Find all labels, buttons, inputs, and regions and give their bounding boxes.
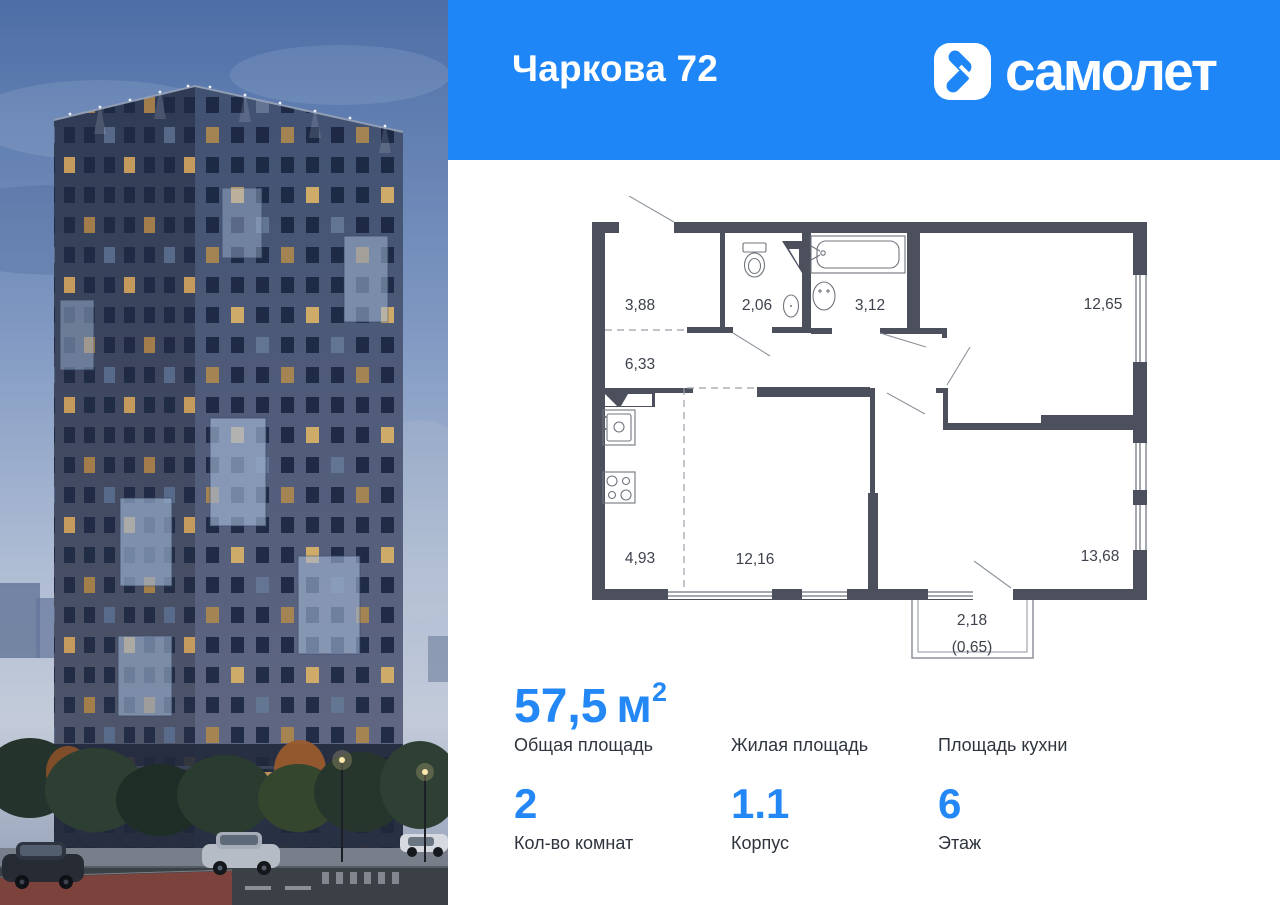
washbasin-icon: [813, 282, 835, 310]
kitchen-area-value: [938, 684, 1158, 730]
room-area-corridor: 6,33: [625, 356, 655, 373]
floor-value: 6: [938, 784, 1158, 824]
apartment-card: { "header": { "project_title": "Чаркова …: [0, 0, 1280, 905]
wc-sink-icon: [784, 295, 799, 317]
floor-plan: 3,88 2,06 3,12 12,65 6,33 4,93 12,16 13,…: [592, 196, 1152, 678]
living-area-value: [731, 684, 938, 730]
floor-label: Этаж: [938, 832, 1158, 854]
room-area-bathroom: 3,12: [855, 297, 885, 314]
stat-col-2: Жилая площадь 1.1 Корпус: [731, 684, 938, 854]
total-area-label: Общая площадь: [514, 734, 731, 756]
room-area-kitchen: 4,93: [625, 550, 655, 567]
bathtub-icon: [811, 236, 905, 273]
stat-col-3: Площадь кухни 6 Этаж: [938, 684, 1158, 854]
room-area-balcony-reduced: (0,65): [952, 639, 993, 656]
room-area-wc: 2,06: [742, 297, 772, 314]
building-value: 1.1: [731, 784, 938, 824]
room-area-bedroom: 12,65: [1084, 296, 1123, 313]
stove-icon: [603, 472, 635, 503]
plan-walls: [592, 222, 1147, 600]
floor-plan-container: 3,88 2,06 3,12 12,65 6,33 4,93 12,16 13,…: [592, 196, 1152, 678]
tower: [54, 85, 403, 858]
room-area-hallway: 3,88: [625, 297, 655, 314]
building-photo-pane: [0, 0, 448, 905]
brand-name: самолет: [1005, 43, 1216, 100]
header-bar: Чаркова 72 самолет: [448, 0, 1280, 160]
details-panel: Чаркова 72 самолет: [448, 0, 1280, 905]
kitchen-area-label: Площадь кухни: [938, 734, 1158, 756]
brand-logo: самолет: [934, 43, 1216, 100]
building-photo: [0, 0, 448, 905]
samolet-logo-icon: [934, 43, 991, 100]
toilet-icon: [743, 243, 766, 277]
building-label: Корпус: [731, 832, 938, 854]
total-area-value: 57,5м2: [514, 684, 731, 730]
rooms-count-value: 2: [514, 784, 731, 824]
vent-shaft-icon: [782, 241, 802, 273]
apartment-stats: 57,5м2 Общая площадь 2 Кол-во комнат Жил…: [514, 684, 1158, 854]
kitchen-sink-icon: [603, 410, 635, 445]
room-area-balcony: 2,18: [957, 612, 987, 629]
living-area-label: Жилая площадь: [731, 734, 938, 756]
page-title: Чаркова 72: [512, 48, 718, 90]
room-area-living: 12,16: [736, 551, 775, 568]
stat-col-1: 57,5м2 Общая площадь 2 Кол-во комнат: [514, 684, 731, 854]
rooms-count-label: Кол-во комнат: [514, 832, 731, 854]
room-area-bedroom-2: 13,68: [1081, 548, 1120, 565]
